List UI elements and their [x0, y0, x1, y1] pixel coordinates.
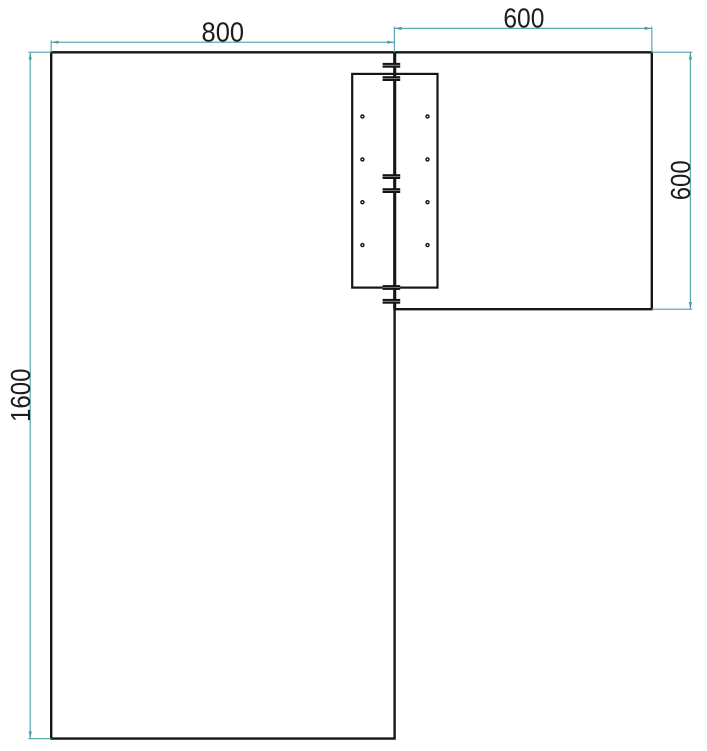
svg-text:1600: 1600	[5, 368, 36, 422]
svg-text:800: 800	[202, 17, 245, 48]
svg-text:600: 600	[503, 3, 544, 34]
svg-text:600: 600	[665, 160, 696, 200]
